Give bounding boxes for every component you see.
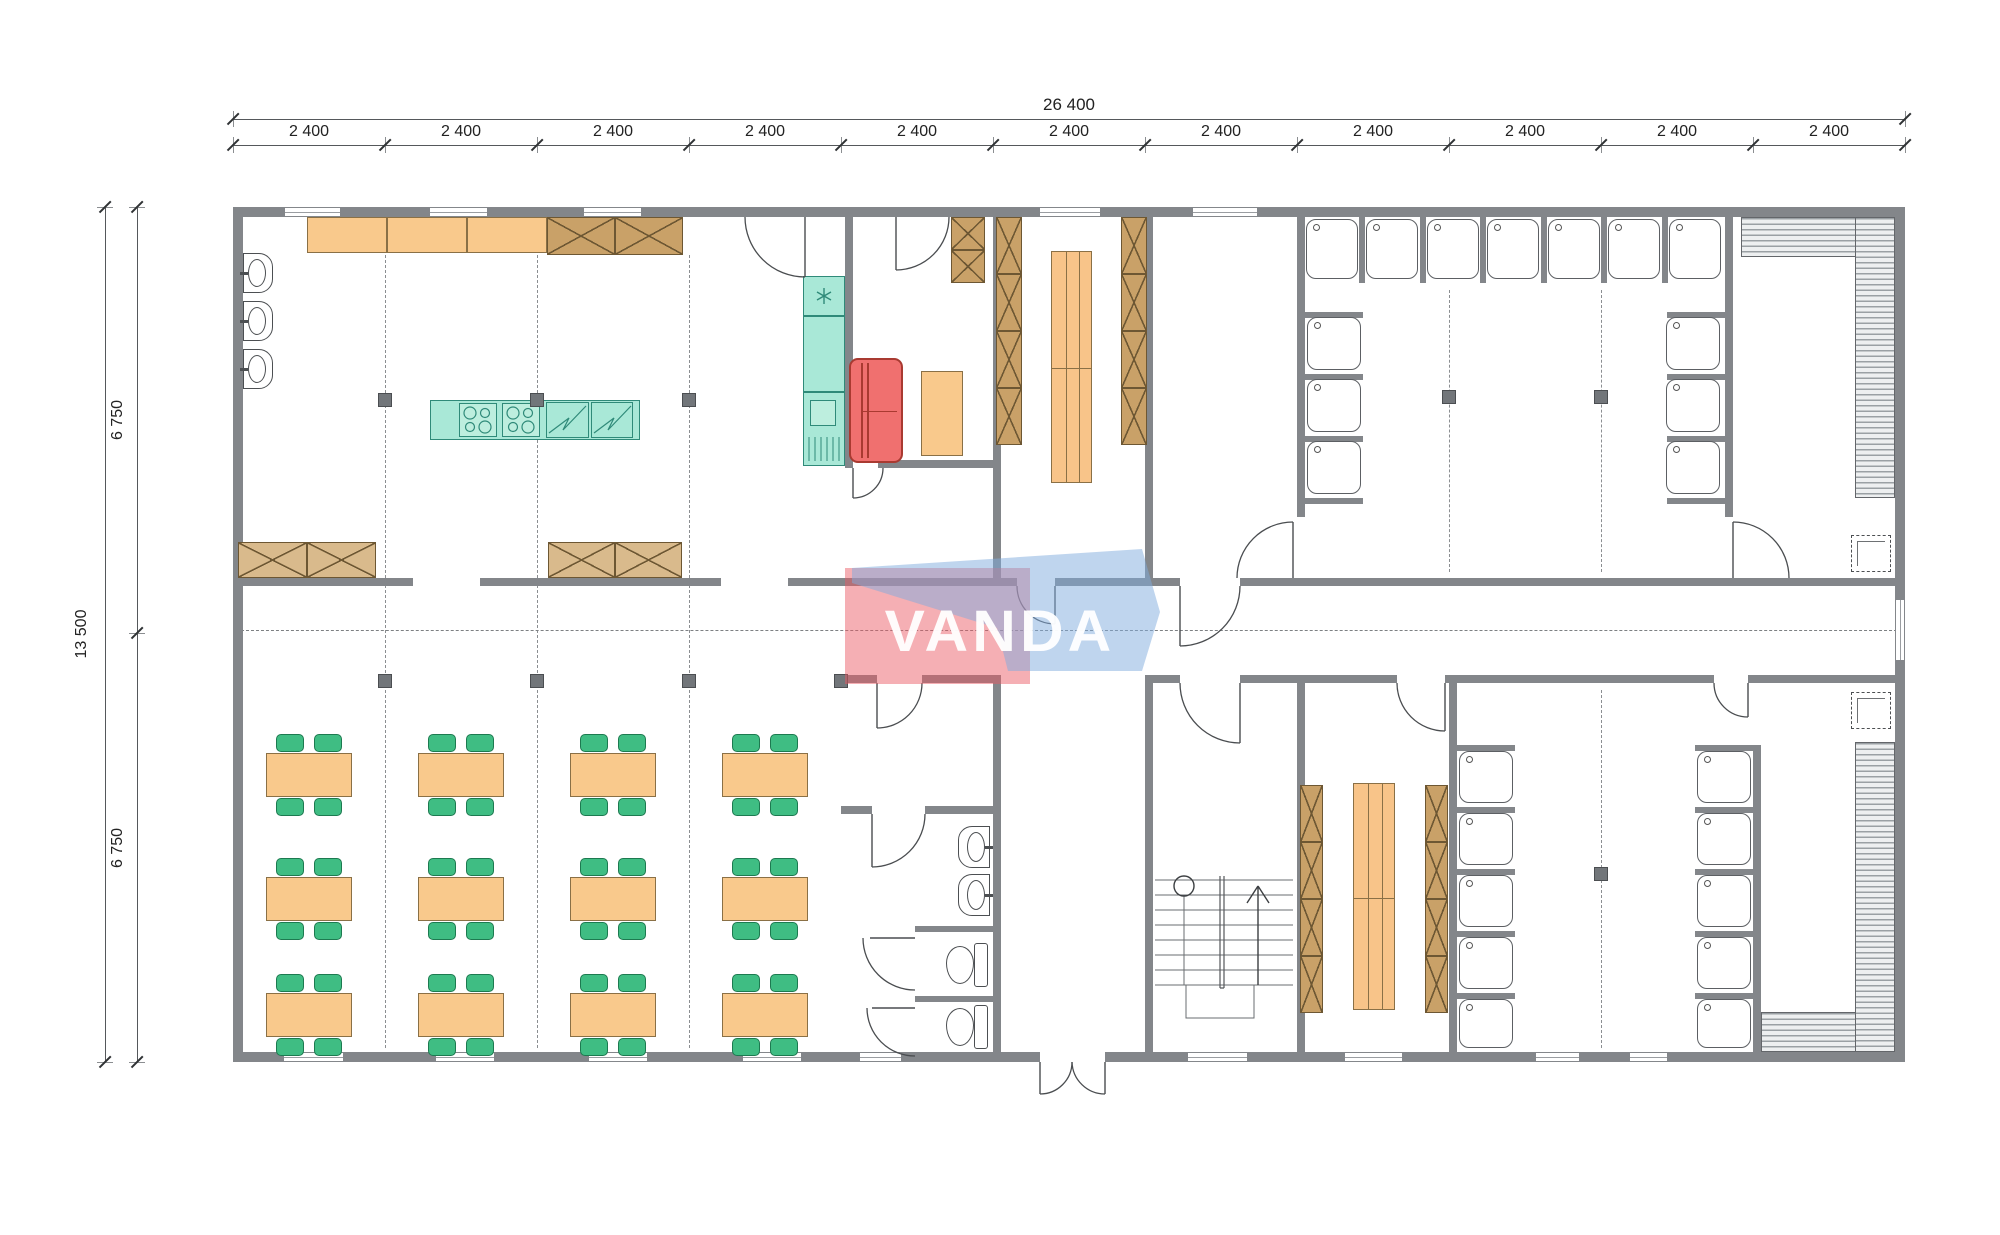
dishwasher-symbol (594, 406, 631, 433)
dimension-bay: 2 400 (233, 123, 385, 141)
door-arc (863, 938, 915, 990)
door-arc (867, 1008, 915, 1056)
dimension-line (137, 207, 138, 1062)
dishwasher-symbol (549, 406, 586, 433)
burner (479, 421, 491, 433)
door-arc (1180, 683, 1240, 743)
burner (481, 409, 490, 418)
dimension-line (233, 145, 1905, 146)
door-arc (872, 814, 925, 867)
dimension-lower-half: 6 750 (109, 788, 127, 908)
door-arc (896, 217, 949, 270)
burner (524, 409, 533, 418)
dimension-bay: 2 400 (1449, 123, 1601, 141)
floor-plan (0, 0, 2000, 1235)
burner (507, 407, 519, 419)
dimension-bay: 2 400 (537, 123, 689, 141)
burner (522, 421, 534, 433)
dimension-bay: 2 400 (1601, 123, 1753, 141)
burner (509, 423, 518, 432)
dimension-bay: 2 400 (993, 123, 1145, 141)
dimension-bay: 2 400 (1145, 123, 1297, 141)
refrigerator-star-icon (817, 288, 831, 304)
stair-railing (1220, 876, 1224, 988)
dimension-bay: 2 400 (385, 123, 537, 141)
door-arc (1017, 586, 1055, 624)
door-arc (1040, 1062, 1072, 1094)
stair-landing (1186, 985, 1254, 1018)
door-arc (1714, 683, 1748, 717)
plan-details-overlay (0, 0, 2000, 1235)
dimension-bay: 2 400 (1297, 123, 1449, 141)
floor-plan-canvas: 26 400 2 4002 4002 4002 4002 4002 4002 4… (0, 0, 2000, 1235)
dimension-bay: 2 400 (1753, 123, 1905, 141)
dimension-upper-half: 6 750 (109, 360, 127, 480)
door-arc (1180, 586, 1240, 646)
door-arc (1237, 522, 1293, 578)
door-arc (1072, 1062, 1105, 1094)
dimension-bay: 2 400 (841, 123, 993, 141)
stair-start-marker (1174, 876, 1194, 896)
door-arc (745, 217, 805, 277)
dimension-total-height: 13 500 (73, 574, 91, 694)
door-arc (1397, 683, 1445, 731)
door-arc (877, 683, 922, 728)
door-arc (853, 468, 883, 498)
sink-drainer (809, 437, 839, 461)
dimension-bay: 2 400 (689, 123, 841, 141)
burner (464, 407, 476, 419)
door-arc (1733, 522, 1789, 578)
dimension-line (105, 207, 106, 1062)
dimension-line (233, 119, 1905, 120)
dimension-total-width: 26 400 (933, 95, 1205, 115)
burner (466, 423, 475, 432)
